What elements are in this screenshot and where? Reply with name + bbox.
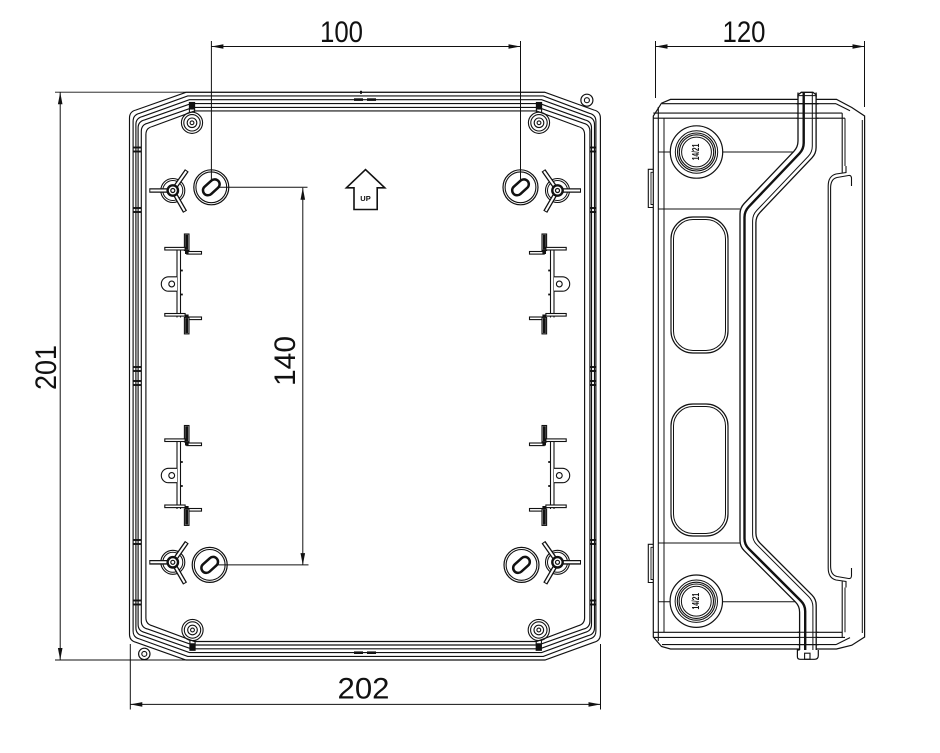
svg-text:201: 201 — [30, 345, 63, 390]
svg-text:14/21: 14/21 — [691, 593, 702, 610]
svg-text:UP: UP — [360, 194, 370, 203]
svg-text:100: 100 — [320, 16, 363, 49]
svg-text:14/21: 14/21 — [691, 143, 702, 160]
svg-text:120: 120 — [723, 16, 766, 49]
svg-text:140: 140 — [269, 336, 302, 386]
svg-text:202: 202 — [338, 673, 390, 706]
